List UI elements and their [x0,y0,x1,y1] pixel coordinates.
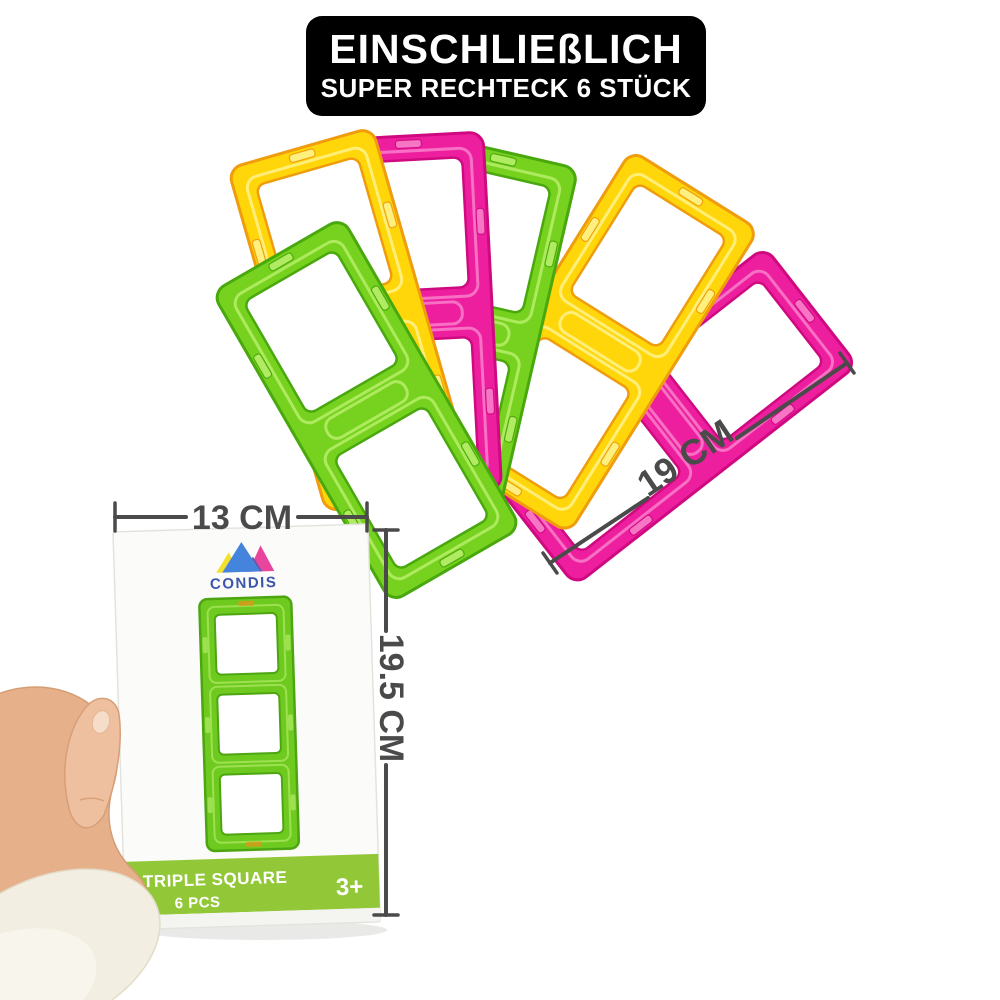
brand-name: CONDIS [210,574,278,593]
product-box: CONDIS TRIPLE SQUARE [113,524,380,930]
age-rating-label: 3+ [335,873,363,901]
box-tile-artwork [199,596,299,851]
product-image: EINSCHLIEßLICH SUPER RECHTECK 6 STÜCK [0,0,1000,1000]
box-tile-magnet-bottom [246,841,262,847]
dimension-box-width-label: 13 CM [192,499,292,537]
box-tile-magnet-top [238,601,254,607]
piece-count-label: 6 PCS [174,894,220,912]
scene: 19 CM CONDIS [0,0,1000,1000]
dimension-box-height-label: 19.5 CM [372,634,410,763]
